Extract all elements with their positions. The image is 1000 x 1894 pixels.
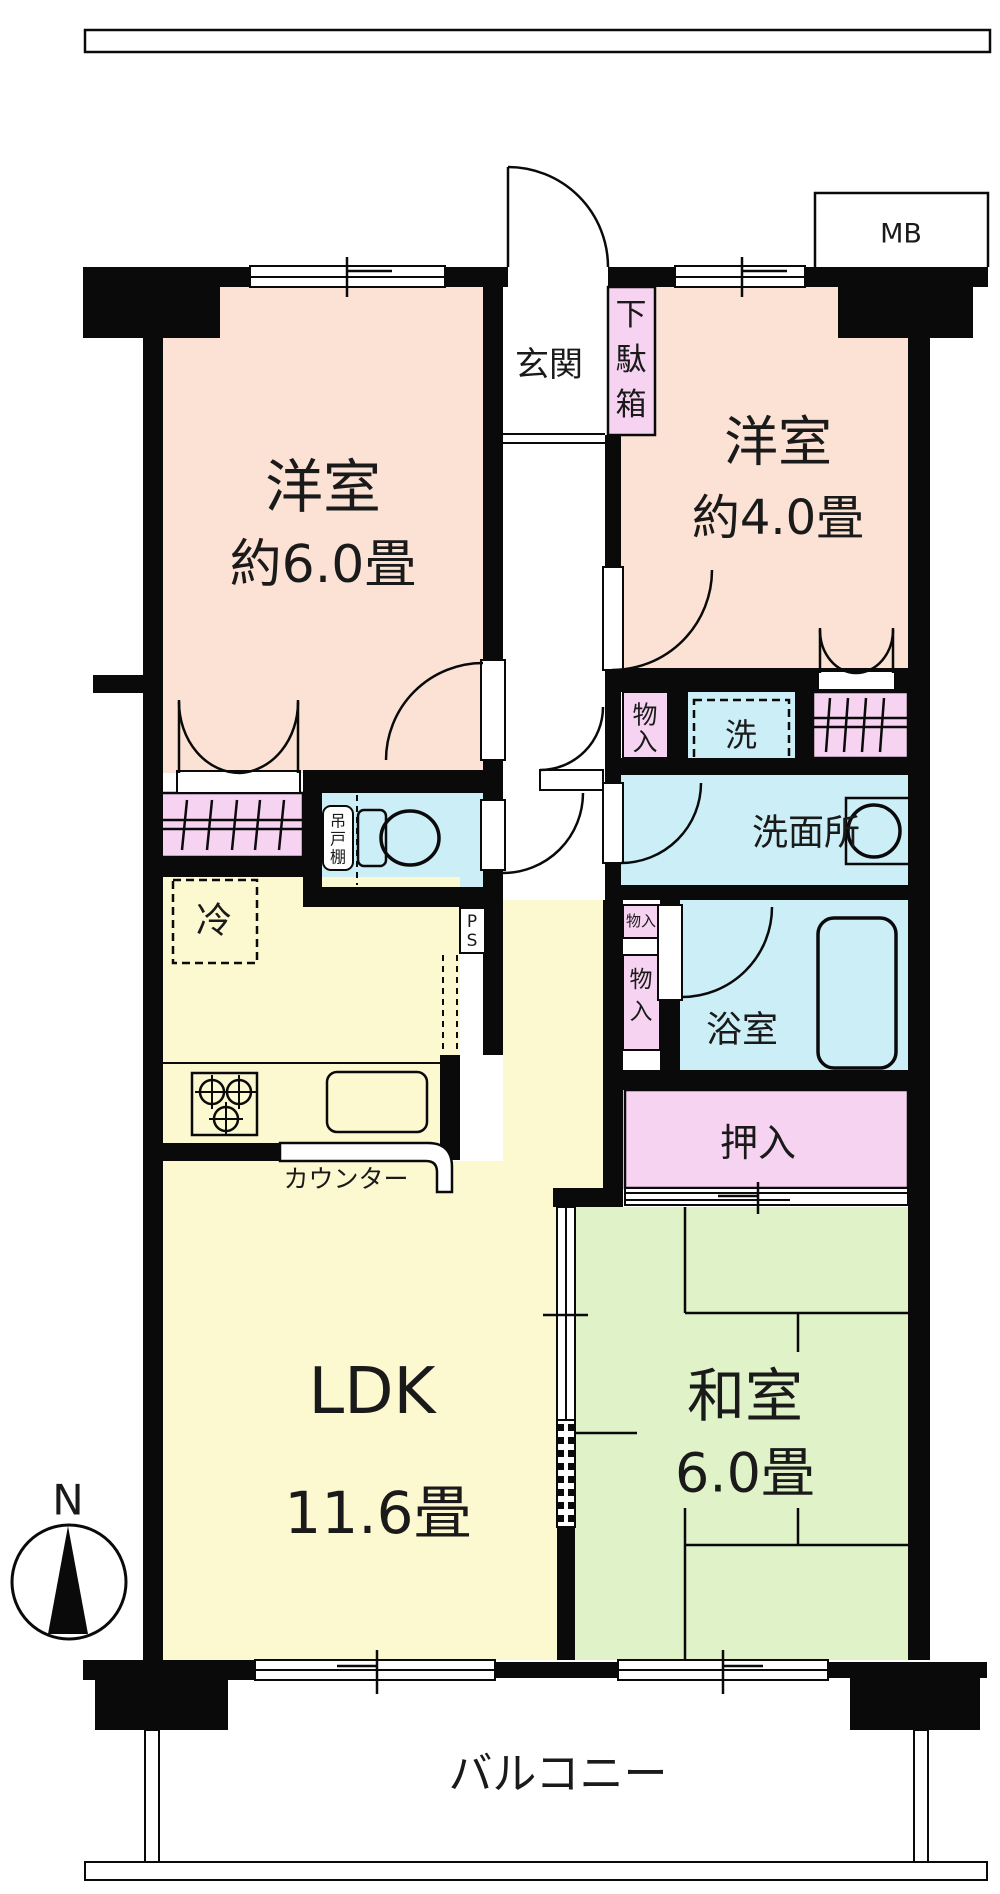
- monoire2-char: 物: [630, 967, 653, 993]
- wall-corridor-right: [605, 863, 621, 900]
- west2-name: 洋室: [724, 411, 832, 474]
- wall-segment: [603, 1070, 930, 1090]
- room-west2: [621, 287, 908, 668]
- wall-pillar: [838, 287, 973, 338]
- wall-right: [908, 338, 930, 1660]
- getabako-char: 駄: [616, 342, 647, 378]
- oshiire-label: 押入: [720, 1121, 796, 1165]
- wall-pillar: [850, 1678, 980, 1730]
- wall-pillar: [95, 1680, 228, 1730]
- laundry-label: 洗: [725, 716, 757, 754]
- wall-segment: [163, 857, 303, 877]
- washitsu-name: 和室: [687, 1362, 803, 1430]
- balcony-rail-right: [914, 1730, 928, 1862]
- getabako-char: 下: [616, 297, 647, 333]
- shoji-partition: [557, 1420, 575, 1527]
- tsuridana-char: 吊: [330, 812, 346, 831]
- meter-box-label: MB: [880, 219, 922, 250]
- balcony-label: バルコニー: [448, 1749, 667, 1800]
- ldk-name: LDK: [309, 1355, 438, 1429]
- wall-corridor-right: [605, 435, 621, 567]
- wall-corridor-right: [605, 670, 621, 783]
- wall-pillar: [83, 287, 220, 338]
- wall-bottom: [495, 1662, 618, 1678]
- wall-segment: [445, 267, 508, 287]
- ldk-size: 11.6畳: [284, 1479, 471, 1547]
- wall-corridor-left: [483, 287, 503, 660]
- door-slot-bath: [658, 905, 682, 1000]
- vestibule-area: [503, 900, 603, 1205]
- floor-plan-drawing: N MB 洋室 約6.0畳 洋室 約4.0畳 玄関 下 駄 箱 物 入 洗 洗面…: [0, 0, 1000, 1894]
- washroom-label: 洗面所: [752, 813, 860, 854]
- wall-pillar: [440, 1055, 460, 1160]
- shoji-track: [557, 1420, 575, 1527]
- wall-segment: [668, 692, 688, 758]
- closet-door-slot-left: [177, 771, 300, 793]
- wall-segment: [608, 267, 675, 287]
- wall-segment: [322, 773, 483, 793]
- ps-char: S: [467, 931, 478, 951]
- wall-segment: [83, 267, 250, 287]
- wall-segment: [303, 773, 322, 887]
- sliding-track-oshiire: [625, 1188, 908, 1205]
- door-slot-west1: [481, 660, 505, 760]
- wall-segment: [621, 758, 908, 775]
- balcony-rail-bottom: [85, 1862, 987, 1880]
- wall-segment: [303, 887, 503, 907]
- wall-left: [143, 338, 163, 1660]
- getabako-char: 箱: [616, 387, 647, 423]
- monoire-top-char: 入: [632, 728, 657, 757]
- wall-segment: [603, 900, 623, 1205]
- monoire-top-char: 物: [632, 701, 657, 730]
- monoire-small-label: 物入: [626, 912, 656, 930]
- tsuridana-char: 戸: [330, 830, 346, 849]
- upper-slab-bar: [85, 30, 990, 52]
- west2-size: 約4.0畳: [692, 490, 864, 546]
- tsuridana-char: 棚: [330, 848, 346, 867]
- bath-label: 浴室: [706, 1010, 778, 1051]
- compass-north-label: N: [52, 1476, 83, 1525]
- washitsu-size: 6.0畳: [675, 1442, 815, 1505]
- balcony-rail-left: [145, 1730, 159, 1862]
- counter-label: カウンター: [283, 1165, 408, 1194]
- wall-bottom: [828, 1662, 987, 1678]
- wall-segment: [621, 885, 908, 900]
- door-slot-washroom: [603, 783, 623, 863]
- wall-stub: [93, 675, 143, 693]
- west1-name: 洋室: [265, 453, 381, 521]
- wall-segment: [553, 1188, 623, 1207]
- wall-segment: [795, 692, 813, 758]
- floor-plan-page: N MB 洋室 約6.0畳 洋室 約4.0畳 玄関 下 駄 箱 物 入 洗 洗面…: [0, 0, 1000, 1894]
- door-slot-west2: [603, 567, 623, 670]
- room-west1: [163, 287, 483, 773]
- refrigerator-label: 冷: [196, 901, 232, 942]
- door-slot-corridor: [540, 770, 603, 790]
- wall-partition: [557, 1527, 575, 1660]
- genkan-label: 玄関: [515, 345, 583, 385]
- wall-segment: [805, 267, 988, 287]
- door-slot-toilet: [481, 800, 505, 870]
- west1-size: 約6.0畳: [230, 535, 417, 595]
- wall-bottom: [83, 1660, 257, 1680]
- ps-char: P: [467, 912, 477, 932]
- wall-kitchen: [143, 1143, 280, 1161]
- monoire2-char: 入: [630, 999, 653, 1025]
